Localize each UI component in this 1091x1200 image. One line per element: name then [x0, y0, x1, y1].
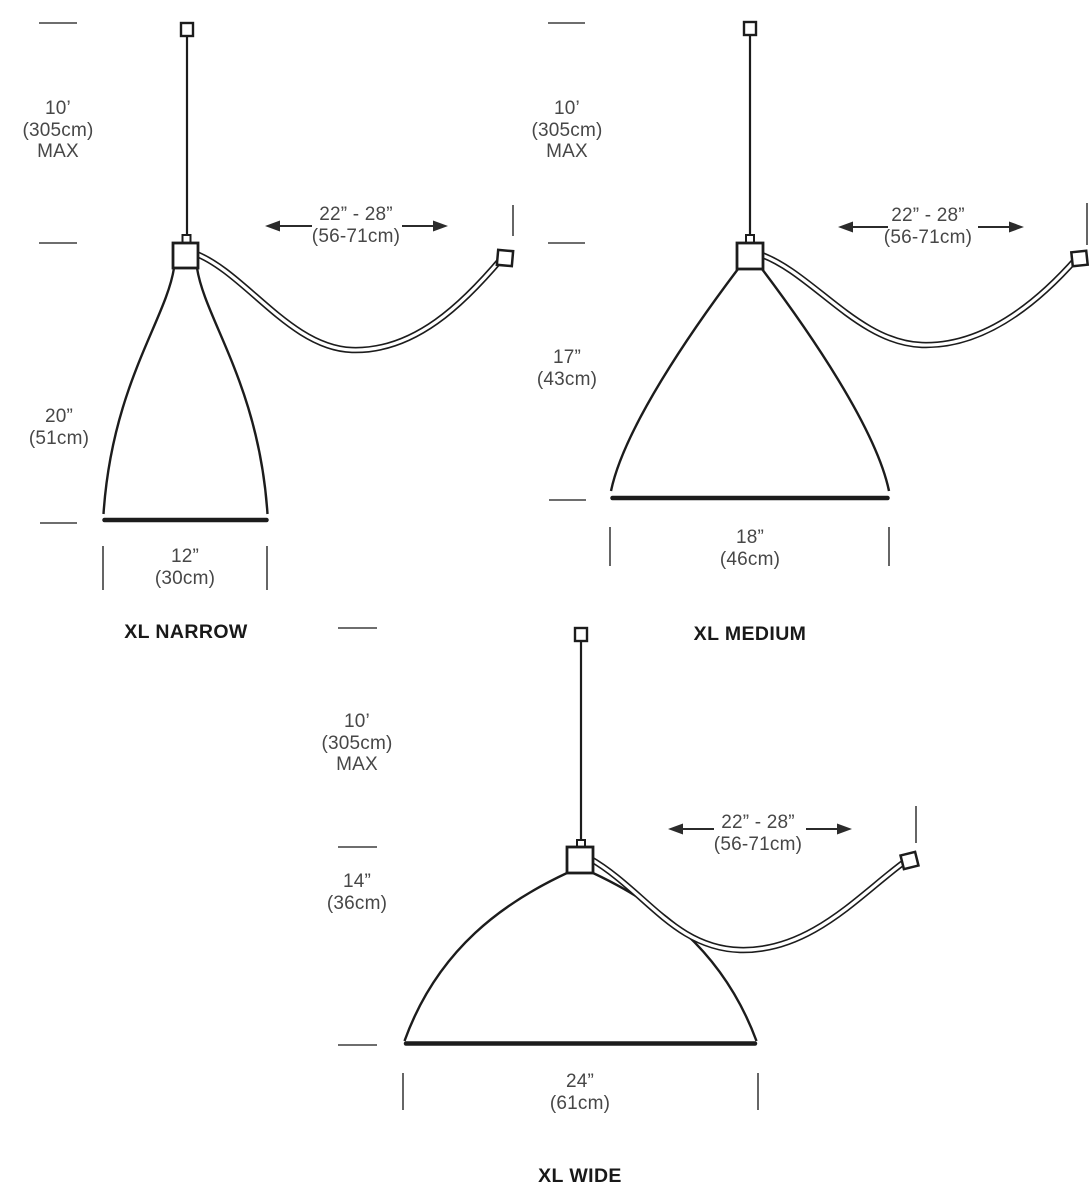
narrow-max-drop-line2: (305cm): [22, 120, 93, 142]
medium-shade-height-line2: (43cm): [537, 369, 597, 391]
narrow-swag-cord-outer: [194, 253, 502, 350]
medium-swag-span-dimension: 22” - 28” (56-71cm): [884, 205, 972, 248]
wide-swag-span-dimension: 22” - 28” (56-71cm): [714, 812, 802, 855]
wide-swag-span-line1: 22” - 28”: [714, 812, 802, 834]
wide-swag-cord-outer: [589, 858, 907, 950]
wide-ceiling-mount: [575, 628, 587, 641]
medium-shade-width-line2: (46cm): [720, 549, 780, 571]
xl-wide-drawing: [405, 628, 919, 1044]
medium-shade-right-edge: [762, 269, 889, 491]
narrow-max-drop-line3: MAX: [22, 141, 93, 163]
medium-max-drop-line1: 10’: [531, 98, 602, 120]
narrow-lamp-name: XL NARROW: [124, 622, 248, 643]
wide-shade-width-line2: (61cm): [550, 1093, 610, 1115]
narrow-arrow-right-head: [433, 221, 448, 232]
line-art: [0, 0, 1091, 1200]
medium-arrow-right-head: [1009, 222, 1024, 233]
medium-shade-width-line1: 18”: [720, 527, 780, 549]
narrow-swag-span-line1: 22” - 28”: [312, 204, 400, 226]
narrow-shade-left-edge: [104, 268, 175, 514]
medium-arrow-left-head: [838, 222, 853, 233]
wide-max-drop-line3: MAX: [321, 754, 392, 776]
narrow-arrow-left-head: [265, 221, 280, 232]
narrow-swag-span-line2: (56-71cm): [312, 226, 400, 248]
narrow-swag-cord-inner: [194, 253, 502, 350]
narrow-shade-height-dimension: 20” (51cm): [29, 406, 89, 449]
wide-arrow-left-head: [668, 824, 683, 835]
wide-canopy: [567, 847, 593, 873]
medium-shade-height-line1: 17”: [537, 347, 597, 369]
narrow-shade-width-line2: (30cm): [155, 568, 215, 590]
wide-max-drop-line2: (305cm): [321, 733, 392, 755]
medium-swag-span-line1: 22” - 28”: [884, 205, 972, 227]
narrow-ceiling-mount: [181, 23, 193, 36]
wide-arrow-right-head: [837, 824, 852, 835]
wide-cord-end-plug: [901, 852, 919, 869]
narrow-max-drop-line1: 10’: [22, 98, 93, 120]
wide-shade-width-dimension: 24” (61cm): [550, 1071, 610, 1114]
medium-shade-left-edge: [611, 269, 738, 491]
medium-canopy: [737, 243, 763, 269]
wide-max-drop-dimension: 10’ (305cm) MAX: [321, 711, 392, 776]
narrow-shade-width-line1: 12”: [155, 546, 215, 568]
medium-max-drop-line3: MAX: [531, 141, 602, 163]
wide-shade-height-dimension: 14” (36cm): [327, 871, 387, 914]
narrow-swag-span-dimension: 22” - 28” (56-71cm): [312, 204, 400, 247]
wide-shade-height-line1: 14”: [327, 871, 387, 893]
medium-shade-height-dimension: 17” (43cm): [537, 347, 597, 390]
medium-swag-span-line2: (56-71cm): [884, 227, 972, 249]
medium-ceiling-mount: [744, 22, 756, 35]
wide-shade-right-edge: [593, 873, 757, 1041]
medium-shade-width-dimension: 18” (46cm): [720, 527, 780, 570]
medium-max-drop-line2: (305cm): [531, 120, 602, 142]
wide-lamp-name: XL WIDE: [538, 1166, 622, 1187]
xl-narrow-drawing: [104, 23, 514, 520]
wide-max-drop-line1: 10’: [321, 711, 392, 733]
wide-shade-left-edge: [405, 873, 568, 1041]
narrow-cord-end-plug: [497, 250, 513, 266]
narrow-shade-width-dimension: 12” (30cm): [155, 546, 215, 589]
wide-shade-height-line2: (36cm): [327, 893, 387, 915]
narrow-shade-right-edge: [197, 268, 268, 514]
xl-medium-drawing: [611, 22, 1088, 498]
narrow-canopy: [173, 243, 198, 268]
wide-swag-cord-inner: [589, 858, 907, 950]
narrow-shade-height-line2: (51cm): [29, 428, 89, 450]
wide-shade-width-line1: 24”: [550, 1071, 610, 1093]
medium-lamp-name: XL MEDIUM: [694, 624, 807, 645]
narrow-max-drop-dimension: 10’ (305cm) MAX: [22, 98, 93, 163]
pendant-dimension-diagram: 10’ (305cm) MAX 20” (51cm) 12” (30cm) 22…: [0, 0, 1091, 1200]
narrow-shade-height-line1: 20”: [29, 406, 89, 428]
wide-swag-span-line2: (56-71cm): [714, 834, 802, 856]
medium-cord-end-plug: [1071, 251, 1087, 266]
medium-max-drop-dimension: 10’ (305cm) MAX: [531, 98, 602, 163]
